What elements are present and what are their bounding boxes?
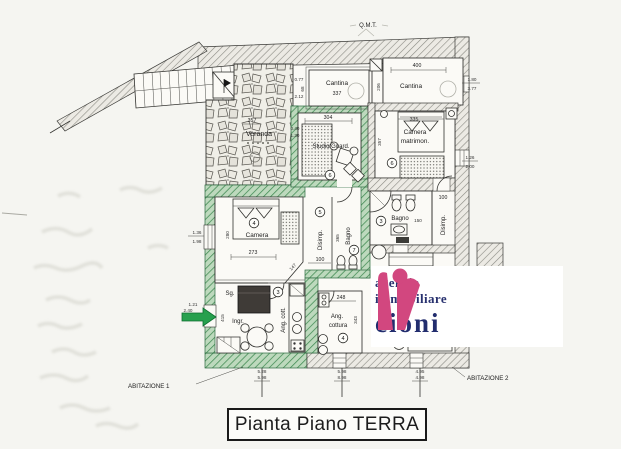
camera-window: [204, 225, 216, 249]
camera-left-dim-top: 1.36: [193, 230, 202, 235]
camera-matr-label-1: Camera: [404, 129, 427, 136]
bottom-dim-2b: 8.98: [338, 375, 347, 380]
soggiorno-number: 3: [276, 290, 279, 296]
cantina1-area: 337: [333, 91, 342, 97]
ingresso-label: Ingr.: [232, 319, 244, 325]
cantina2-right-dim-top: 1.80: [468, 77, 477, 82]
disimp2-width: 100: [439, 195, 448, 201]
bagno1-number: 7: [352, 248, 355, 254]
disimp2-label: Disimp.: [441, 215, 447, 235]
studio-dim-top: 0.40: [291, 126, 300, 131]
camera-left-dim-bot: 1.98: [193, 239, 202, 244]
camera-label: Camera: [246, 232, 269, 239]
veranda-bottom-wall: [205, 185, 305, 197]
camera-matr-depth: 357: [377, 138, 382, 146]
cantina2-width: 400: [413, 63, 422, 69]
ang-cott2-label-2: cottura: [329, 323, 348, 329]
ang-cott1-label: Ang. cott.: [281, 307, 287, 333]
bottom-wall-right: [307, 353, 469, 368]
soggiorno-label: Sg.: [225, 291, 234, 297]
veranda-label: Veranda: [246, 131, 272, 138]
abitazione-1-label: ABITAZIONE 1: [128, 383, 170, 390]
cantina1-dim-bot: 2.12: [295, 94, 304, 99]
room-cantina-1: Cantina 337 0.77 68 2.12: [295, 67, 372, 109]
bottom-dim-2a: 5.98: [338, 369, 347, 374]
veranda-area: 357: [248, 118, 257, 124]
camera-matr-label-2: matrimon.: [401, 138, 430, 145]
disimp1-number: 5: [318, 210, 321, 216]
bottom-dim-1a: 5.28: [258, 369, 267, 374]
ang-cott2-width: 248: [337, 295, 346, 301]
cantina1-label: Cantina: [326, 80, 348, 87]
bottom-wall-green: [205, 353, 307, 368]
room-angolo-cottura-2: 248 Ang. cottura 343 4: [318, 291, 362, 355]
entrance-dim-bot: 2.40: [184, 308, 193, 313]
disimp1-label: Disimp.: [318, 230, 324, 250]
cantina1-dim-v: 68: [300, 86, 305, 92]
ang-cott2-depth: 343: [353, 316, 358, 324]
bottom-dim-3b: 4.98: [416, 375, 425, 380]
plan-title-box: Pianta Piano TERRA: [227, 408, 427, 441]
studio-number: 6: [328, 173, 331, 179]
disimp1-width: 100: [316, 257, 325, 263]
camera-matr-number: 6: [390, 161, 393, 167]
bagno2-number: 3: [379, 219, 382, 225]
bagno1-depth: 365: [335, 234, 340, 242]
bagno2-label: Bagno: [391, 216, 409, 222]
cantina2-label: Cantina: [400, 83, 422, 90]
soggiorno-depth: 415: [220, 314, 225, 322]
bagno1-label: Bagno: [346, 227, 352, 245]
studio-dim-bot: 1.30: [291, 133, 300, 138]
floor-plan-drawing: Q.M.T. 357 Veranda: [0, 0, 621, 449]
camera-bottom-dim: 273: [249, 250, 258, 256]
party-wall-lower: [305, 278, 318, 353]
bagno2-dim: 150: [414, 218, 422, 223]
agency-logo-icon: [371, 266, 425, 336]
camera-matr-width: 335: [410, 117, 419, 123]
plan-title: Pianta Piano TERRA: [235, 414, 419, 435]
camera-matr-right-dim-top: 1.26: [466, 155, 475, 160]
cantina1-dim-top: 0.77: [295, 77, 304, 82]
ang-cott2-number: 4: [341, 336, 344, 342]
cantina2-right-dim-bot: 3.77: [468, 86, 477, 91]
studio-left-wall: [291, 106, 298, 186]
camera-depth: 280: [225, 231, 230, 239]
scanned-floor-plan-page: Q.M.T. 357 Veranda: [0, 0, 621, 449]
ang-cott2-label-1: Ang.: [331, 314, 344, 320]
studio-label: Studio/Guard.: [312, 144, 349, 150]
landing-door: [213, 72, 235, 98]
cantina2-dim-v: 206: [376, 83, 381, 91]
agency-logo: agenzia immobiliare cioni: [371, 266, 563, 347]
faint-note-text: Q.M.T.: [359, 23, 377, 29]
bottom-dim-3a: 4.95: [416, 369, 425, 374]
studio-top-wall: [291, 106, 368, 113]
studio-width: 304: [324, 115, 333, 121]
party-wall-horizontal: [305, 270, 370, 278]
bottom-dim-1b: 5.98: [258, 375, 267, 380]
camera-matr-right-dim-bot: 2.00: [466, 164, 475, 169]
left-perimeter-wall: [205, 197, 215, 353]
abitazione-2-label: ABITAZIONE 2: [467, 375, 509, 382]
camera-number: 4: [252, 221, 255, 227]
entrance-dim-top: 1.21: [189, 302, 198, 307]
